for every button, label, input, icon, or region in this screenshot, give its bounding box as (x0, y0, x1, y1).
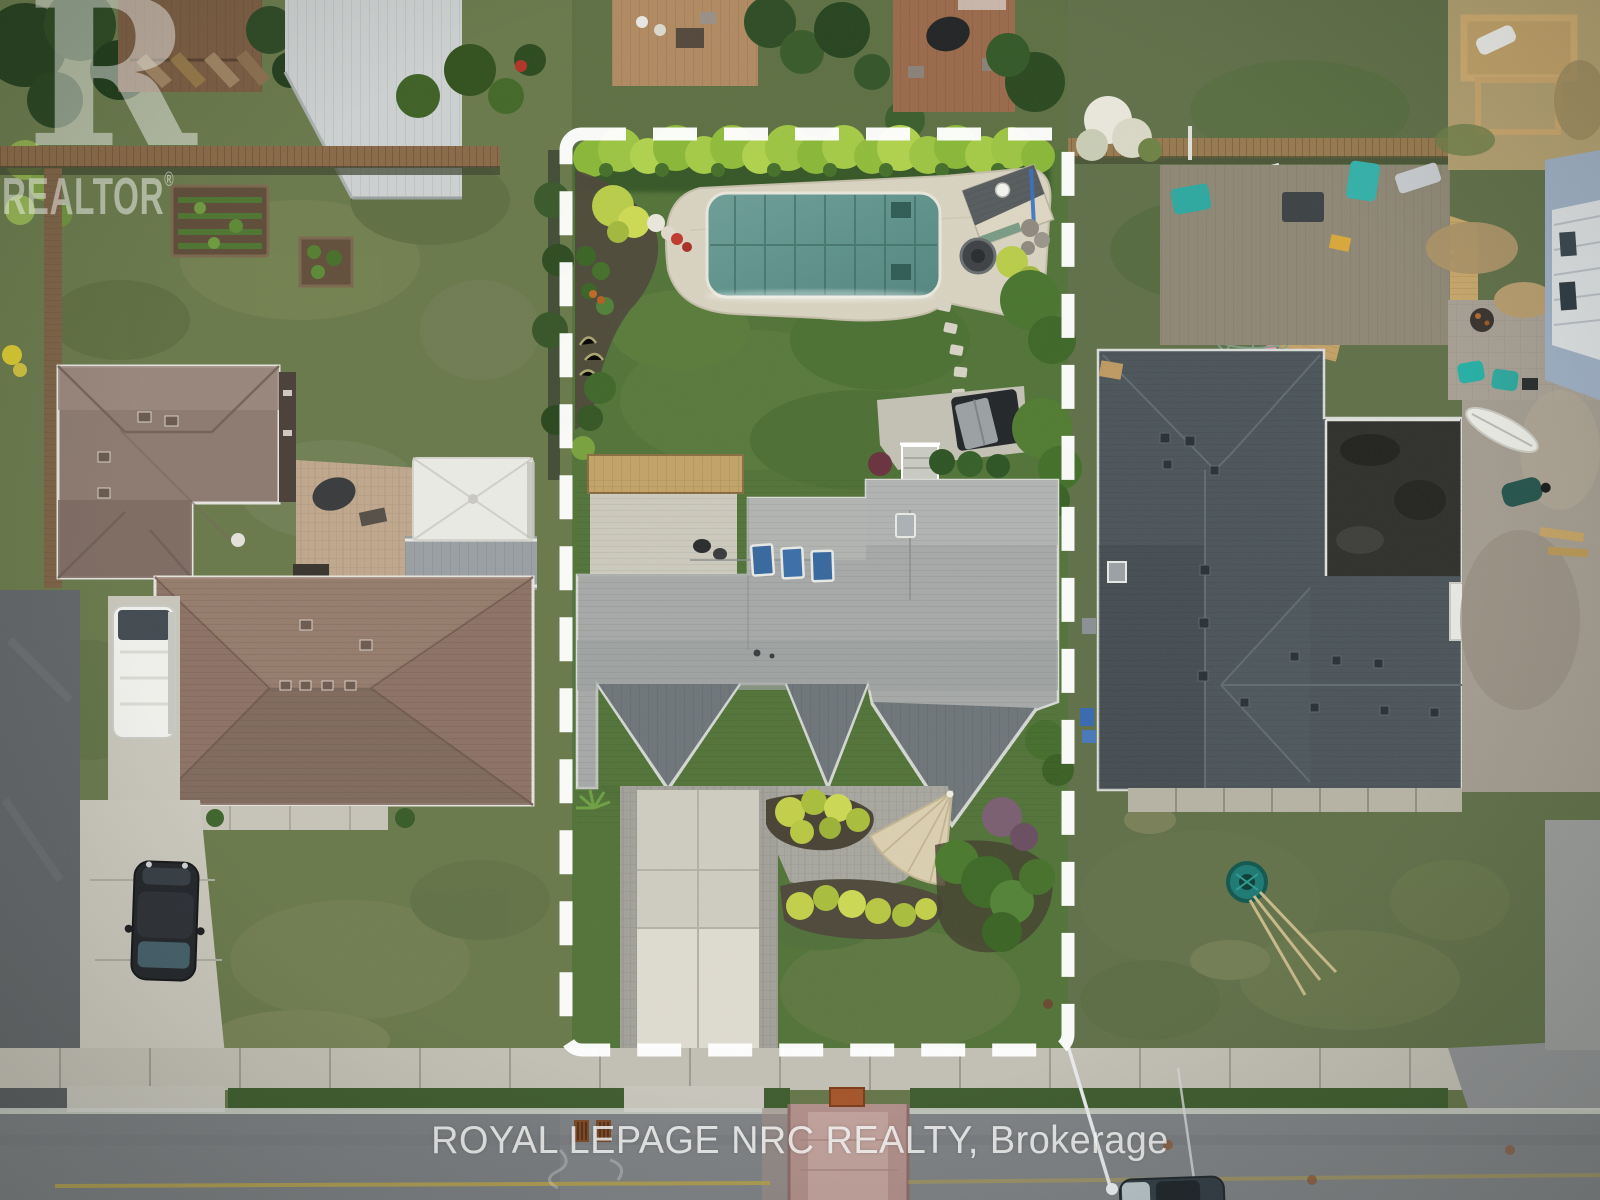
scene-canvas (0, 0, 1600, 1200)
brokerage-caption: ROYAL LEPAGE NRC REALTY, Brokerage (431, 1120, 1169, 1162)
aerial-photo: R REALTOR® ROYAL LEPAGE NRC REALTY, Brok… (0, 0, 1600, 1200)
film-grain (0, 0, 1600, 1200)
